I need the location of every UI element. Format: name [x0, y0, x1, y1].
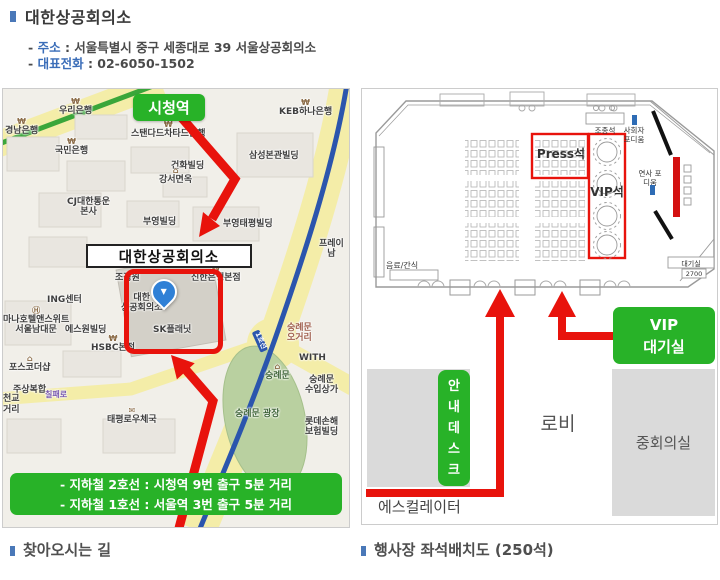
phone-line: - 대표전화 : 02-6050-1502: [28, 53, 195, 72]
drinks-label: 음료/간식: [386, 260, 442, 271]
waiting-room-label: 대기실: [668, 259, 714, 269]
mc-podium-marker-icon: [632, 115, 637, 125]
caption-bullet-icon: [361, 546, 366, 556]
phone-label: 대표전화: [38, 56, 84, 71]
seating-panel: 조종석 Press석 VIP석 사회자 포디움 연사 포디움 음료/간식 대기실…: [361, 88, 718, 525]
header: 대한상공회의소 - 주소 : 서울특별시 중구 세종대로 39 서울상공회의소 …: [0, 0, 720, 86]
station-badge: 시청역: [133, 94, 205, 121]
vip-seat-label: VIP석: [589, 183, 625, 200]
dimension-label: 2700: [682, 270, 706, 278]
page-title: 대한상공회의소: [25, 4, 132, 28]
mc-podium-label: 사회자 포디움: [620, 126, 648, 144]
press-seat-label: Press석: [534, 145, 588, 162]
mid-room-label: 중회의실: [636, 432, 691, 453]
vip-waiting-room-badge: VIP 대기실: [613, 307, 715, 364]
caption-seating-chart: 행사장 좌석배치도 (250석): [361, 539, 554, 560]
title-bullet-icon: [10, 11, 16, 22]
mid-conference-room: 중회의실: [612, 369, 715, 516]
info-desk-badge: 안내데스크: [438, 370, 470, 486]
escalator-label: 에스컬레이터: [378, 496, 461, 517]
dash: -: [28, 56, 33, 71]
speaker-podium-marker-icon: [650, 185, 655, 195]
page: 대한상공회의소 - 주소 : 서울특별시 중구 세종대로 39 서울상공회의소 …: [0, 0, 720, 580]
info-desk-label: 안내데스크: [447, 376, 462, 481]
subway-line1-info: - 지하철 1호선 : 서울역 3번 출구 5분 거리: [60, 495, 292, 514]
lobby-label: 로비: [528, 409, 588, 436]
venue-label-box: 대한상공회의소: [86, 244, 252, 268]
phone-value: : 02-6050-1502: [88, 56, 195, 71]
vip-waiting-line2: 대기실: [643, 336, 684, 358]
caption-directions: 찾아오시는 길: [10, 539, 111, 560]
caption-bullet-icon: [10, 546, 15, 556]
stage-screen: [673, 157, 680, 217]
vip-waiting-line1: VIP: [650, 314, 678, 336]
subway-line2-info: - 지하철 2호선 : 시청역 9번 출구 5분 거리: [60, 475, 292, 494]
subway-info-banner: - 지하철 2호선 : 시청역 9번 출구 5분 거리 - 지하철 1호선 : …: [10, 473, 342, 515]
map-panel: ₩경남은행₩우리은행₩KEB하나은행₩스탠다드차타드은행₩국민은행삼성본관빌딩건…: [2, 88, 350, 528]
